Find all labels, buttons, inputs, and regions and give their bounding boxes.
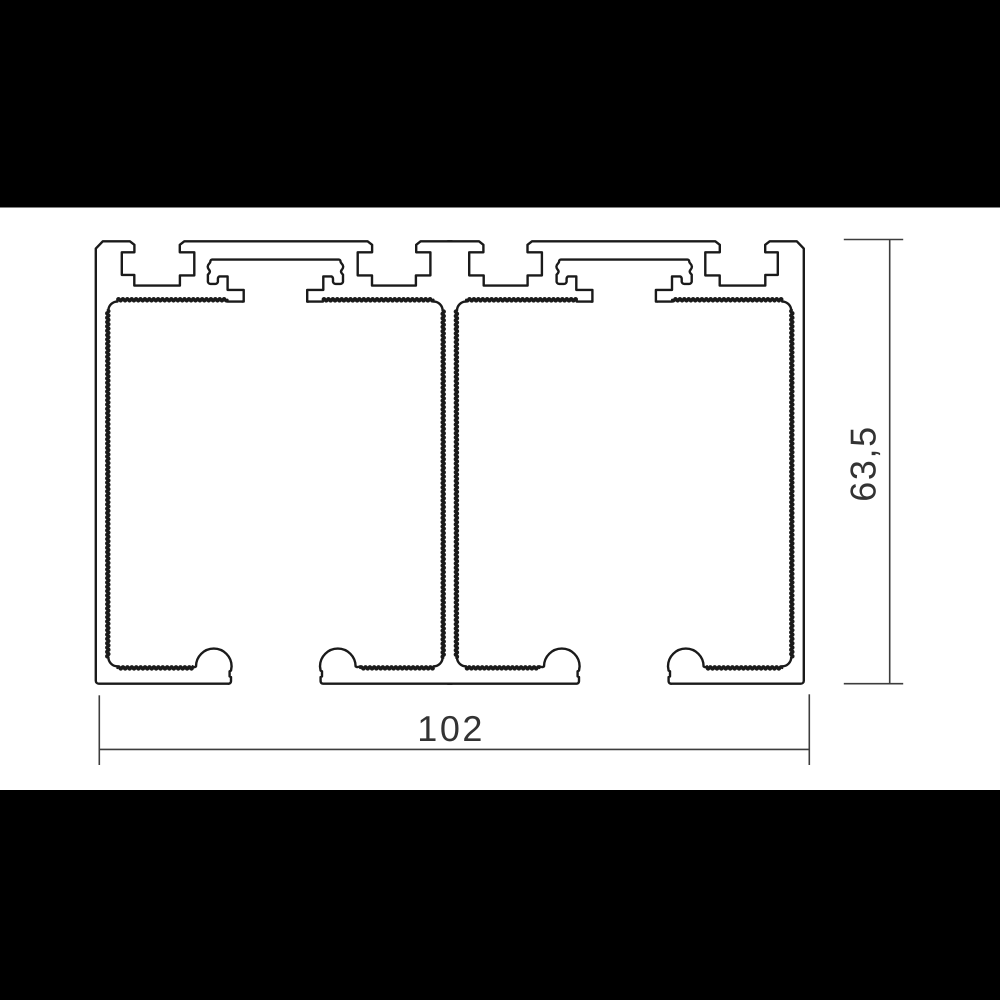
svg-text:102: 102 bbox=[417, 708, 485, 749]
svg-text:63,5: 63,5 bbox=[843, 425, 884, 501]
